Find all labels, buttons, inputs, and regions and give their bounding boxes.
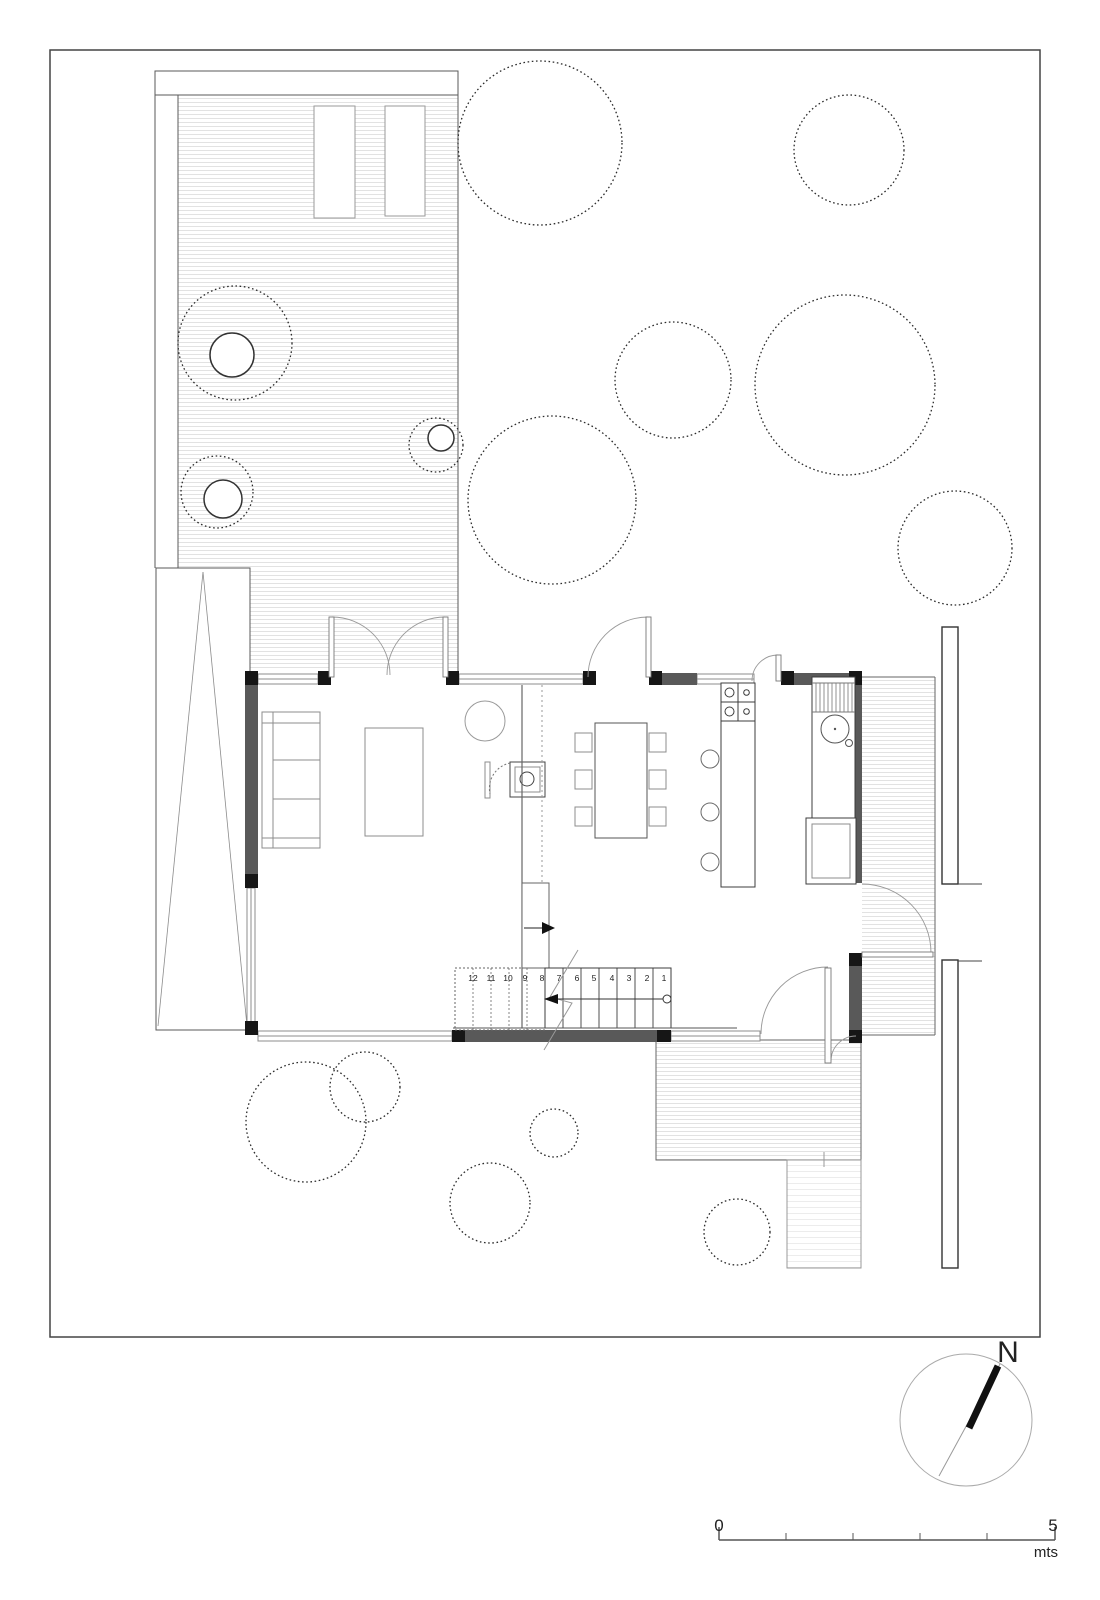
tree-trunk [210,333,254,377]
french-doors-to-deck [329,617,448,677]
wall-segment [849,962,862,1031]
dining-table [595,723,647,838]
stair-number: 4 [610,973,615,983]
deck-top-planter [155,71,458,95]
wall-segment [465,1030,657,1042]
dashed-risers [473,968,527,1030]
side-yard-strip [156,568,250,1030]
scale-zero-label: 0 [714,1516,723,1535]
freestanding-wall-lower [942,960,958,1268]
side-door-to-walkway [862,884,933,957]
stair-number: 11 [487,973,496,983]
scale-bar: 0 5 mts [714,1516,1058,1561]
bar-stool [701,803,719,821]
stair-number: 1 [662,973,667,983]
entry-door [761,967,856,1063]
wall-segment [662,673,697,685]
entry-path-outline [787,1160,861,1268]
door-leaf [776,655,781,681]
stair-number: 3 [627,973,632,983]
tree-canopy [246,1062,366,1182]
scale-unit-label: mts [1034,1544,1058,1561]
dining-chair [575,770,592,789]
plant-pot [465,701,505,741]
tree-canopy [468,416,636,584]
dining-chair [575,807,592,826]
door-swing-arc [332,617,390,675]
door-leaf [825,968,831,1063]
sink-drain [834,728,836,730]
compass: N [900,1336,1032,1486]
trees [178,61,1012,1265]
coffee-table [365,728,423,836]
door-swing-arc [588,617,648,677]
tree-canopy [450,1163,530,1243]
dining-chair [649,807,666,826]
stair-number: 9 [523,973,528,983]
column [781,671,794,685]
stair-number: 8 [540,973,545,983]
north-label: N [997,1336,1019,1369]
column [849,953,862,966]
stairs-lower [545,968,671,1028]
dining-area [575,723,666,838]
door-swing-arc [752,655,778,681]
compass-circle [900,1354,1032,1486]
deck-structure [155,71,458,1030]
door-leaf [862,952,933,957]
kitchen [701,677,856,887]
door-swing-arc [862,884,931,953]
sun-lounger [385,106,425,216]
plan-linework: 12 11 10 9 8 7 6 5 4 3 2 1 N [0,0,1100,1600]
stair-number: 2 [645,973,650,983]
compass-needle-north [969,1366,998,1428]
sofa [262,712,320,848]
bar-stool [701,853,719,871]
kitchen-service-door [752,655,781,681]
bar-stool [701,750,719,768]
floor-plan-drawing: 12 11 10 9 8 7 6 5 4 3 2 1 N [0,0,1100,1600]
column [657,1030,671,1042]
stair-number: 12 [468,973,478,983]
oven-cabinet [806,818,856,884]
tree-trunk [204,480,242,518]
tree-canopy [530,1109,578,1157]
stair-number: 7 [557,973,562,983]
kitchen-counter [812,677,855,818]
stove-door-leaf [485,762,490,798]
scale-five-label: 5 [1048,1516,1057,1535]
sun-lounger [314,106,355,218]
column [245,874,258,888]
tree-canopy [755,295,935,475]
tree-canopy [458,61,622,225]
tree-canopy [704,1199,770,1265]
door-leaf [646,617,651,677]
stair-number: 6 [575,973,580,983]
column [245,1021,258,1035]
door-leaf [329,617,334,677]
wood-stove [485,762,545,798]
dining-chair [649,770,666,789]
stair-number: 5 [592,973,597,983]
freestanding-wall-upper [942,627,958,884]
dining-chair [649,733,666,752]
wall-segment [245,685,258,875]
stove-door-arc [489,763,510,794]
column [583,671,596,685]
tree-trunk [428,425,454,451]
dining-chair [575,733,592,752]
tree-canopy [794,95,904,205]
living-room [262,701,545,848]
column [452,1030,465,1042]
door-swing-arc [387,617,445,675]
door-swing-arc [761,967,828,1034]
stair-number: 10 [503,973,513,983]
tree-canopy [615,322,731,438]
tree-canopy [898,491,1012,605]
door-leaf [443,617,448,677]
column [245,671,258,685]
dining-door-to-deck [588,617,651,677]
